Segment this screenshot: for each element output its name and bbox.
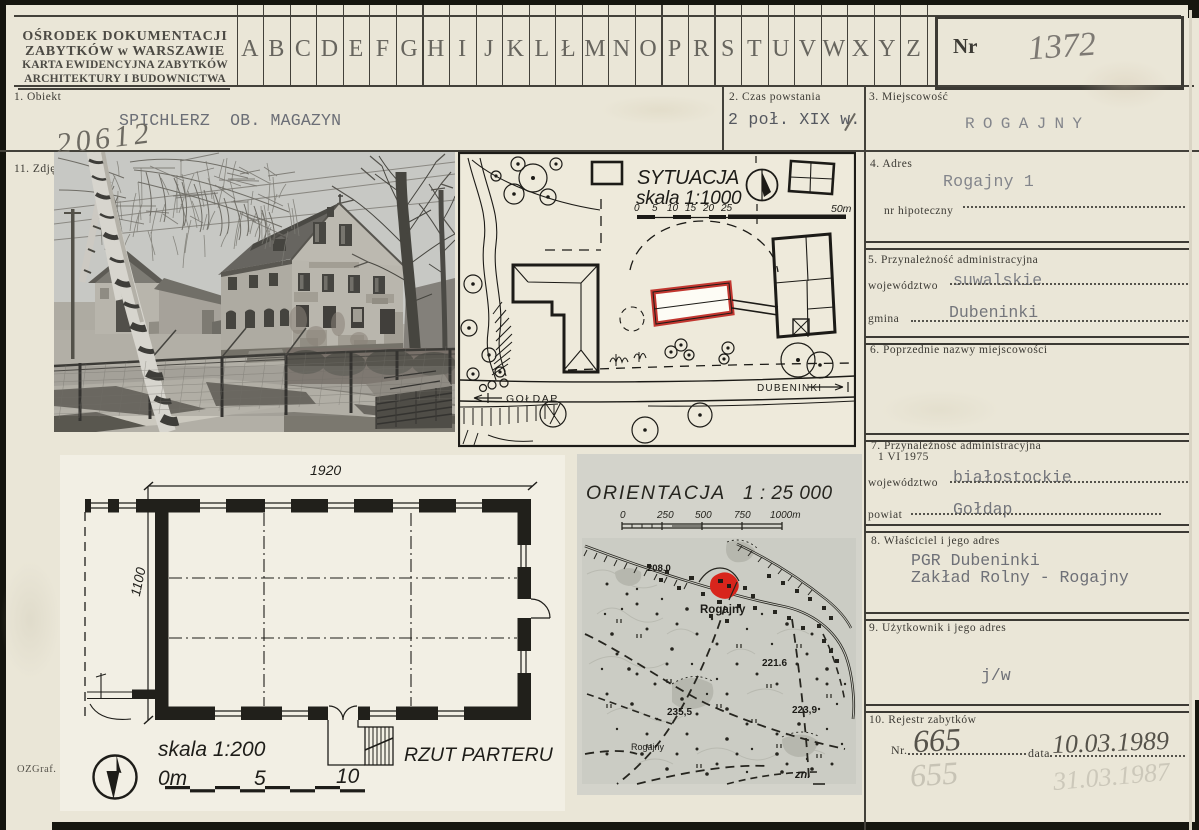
svg-text:5: 5 <box>652 203 658 214</box>
svg-text:0: 0 <box>620 510 626 521</box>
svg-text:5: 5 <box>254 767 266 790</box>
svg-text:500: 500 <box>695 510 712 521</box>
svg-text:DUBENINKI: DUBENINKI <box>757 383 822 394</box>
svg-text:250: 250 <box>656 510 674 521</box>
svg-text:235,5: 235,5 <box>667 707 692 718</box>
svg-text:223,9: 223,9 <box>792 705 817 716</box>
svg-text:Rogajny: Rogajny <box>631 742 665 752</box>
svg-text:750: 750 <box>734 510 751 521</box>
svg-text:1100: 1100 <box>128 566 149 598</box>
svg-text:RZUT PARTERU: RZUT PARTERU <box>404 744 554 766</box>
svg-text:ORIENTACJA: ORIENTACJA <box>586 482 726 504</box>
svg-text:10: 10 <box>667 203 679 214</box>
svg-text:221.6: 221.6 <box>762 658 787 669</box>
svg-text:SYTUACJA: SYTUACJA <box>637 167 739 189</box>
svg-text:208.0: 208.0 <box>647 563 671 574</box>
svg-text:1 : 25 000: 1 : 25 000 <box>743 483 833 504</box>
svg-text:50m: 50m <box>831 203 852 215</box>
svg-text:Rogajny: Rogajny <box>700 604 746 616</box>
svg-text:10: 10 <box>336 765 360 788</box>
svg-text:0: 0 <box>634 203 640 214</box>
svg-text:15: 15 <box>685 203 697 214</box>
svg-text:GOŁDAP: GOŁDAP <box>506 393 559 405</box>
svg-text:1000m: 1000m <box>770 510 801 521</box>
svg-text:25: 25 <box>720 203 733 214</box>
svg-text:zn.: zn. <box>794 769 810 781</box>
svg-text:20: 20 <box>702 203 715 214</box>
svg-text:1920: 1920 <box>310 462 341 478</box>
svg-text:skala 1:200: skala 1:200 <box>158 738 266 761</box>
